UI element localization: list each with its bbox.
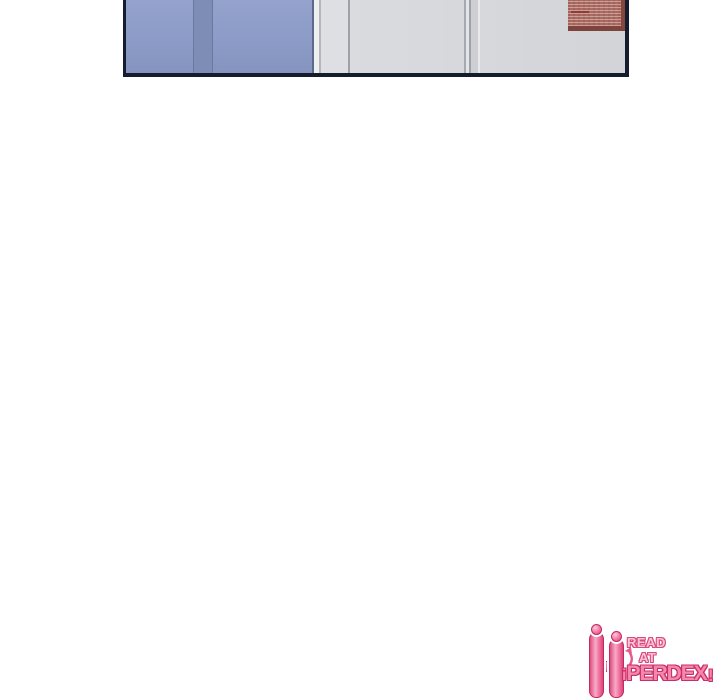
comic-panel-artwork	[126, 0, 625, 73]
wall-light-strip	[478, 0, 480, 73]
door-frame-stripe	[193, 0, 213, 73]
wall-poster	[568, 0, 625, 31]
h-logo-left-ball	[591, 624, 602, 635]
brand-name-text: PERDEX	[626, 663, 706, 684]
panel-gray-wall	[314, 0, 625, 73]
wall-light-panel	[321, 0, 348, 73]
hiperdex-watermark: READ AT i PERDEX ! .COM	[588, 618, 720, 700]
h-logo-right-ball	[611, 631, 622, 642]
door-frame-line	[348, 0, 350, 73]
wall-shaded-band	[471, 0, 478, 73]
panel-blue-door	[126, 0, 314, 73]
poster-heading-line	[571, 11, 589, 13]
watermark-brand: i PERDEX ! .COM	[622, 663, 720, 684]
brand-exclamation: !	[708, 667, 714, 684]
comic-panel	[123, 0, 629, 77]
h-logo-left-bar	[589, 632, 604, 698]
